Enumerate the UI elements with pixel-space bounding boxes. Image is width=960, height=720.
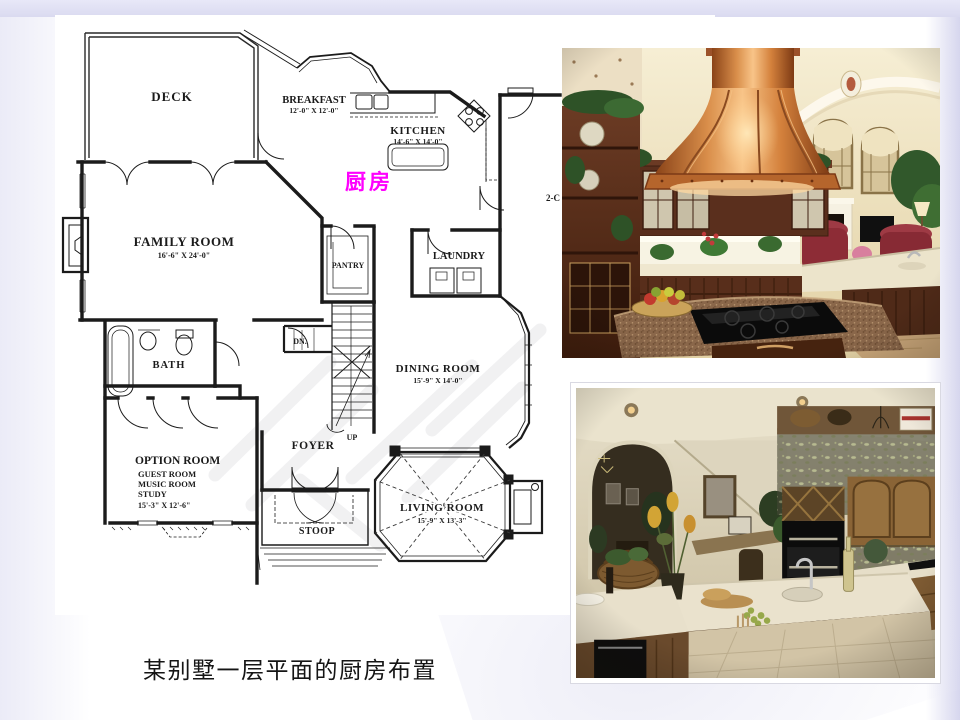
room-label-deck: DECK	[151, 89, 193, 104]
room-dims-kitchen: 14'-6" X 14'-0"	[393, 137, 442, 146]
label-garage-partial: 2-C	[546, 193, 560, 203]
room-label-option-sub2: MUSIC ROOM	[138, 479, 196, 489]
room-label-kitchen: KITCHEN	[390, 125, 445, 137]
room-label-laundry: LAUNDRY	[433, 251, 486, 262]
room-label-foyer: FOYER	[292, 440, 335, 452]
room-dims-dining: 15'-9" X 14'-0"	[413, 376, 462, 385]
room-dims-living: 15'-9" X 13'-3"	[417, 516, 466, 525]
room-label-breakfast: BREAKFAST	[282, 95, 345, 106]
kitchen-photo-top	[562, 48, 940, 358]
room-label-bath: BATH	[153, 360, 186, 371]
room-label-option: OPTION ROOM	[135, 455, 220, 467]
room-label-stoop: STOOP	[299, 526, 335, 537]
room-label-dining: DINING ROOM	[396, 363, 481, 375]
room-dims-family: 16'-6" X 24'-0"	[158, 251, 210, 260]
room-dims-option: 15'-3" X 12'-6"	[138, 501, 190, 510]
kitchen-annotation-cn: 厨房	[345, 172, 393, 193]
kitchen-photo-top-art	[562, 48, 940, 358]
slide-caption: 某别墅一层平面的厨房布置	[143, 651, 437, 685]
kitchen-photo-bottom-art	[576, 388, 935, 678]
room-label-option-sub1: GUEST ROOM	[138, 469, 196, 479]
room-dims-breakfast: 12'-0" X 12'-0"	[289, 106, 338, 115]
label-up: UP	[347, 433, 358, 442]
room-label-pantry: PANTRY	[332, 261, 365, 270]
kitchen-photo-bottom	[570, 382, 941, 684]
room-label-living: LIVING ROOM	[400, 502, 484, 514]
slide: DECK BREAKFAST 12'-0" X 12'-0" KITCHEN 1…	[0, 0, 960, 720]
room-label-option-sub3: STUDY	[138, 489, 167, 499]
room-label-family: FAMILY ROOM	[134, 234, 235, 249]
label-dn: DN.	[293, 337, 307, 346]
